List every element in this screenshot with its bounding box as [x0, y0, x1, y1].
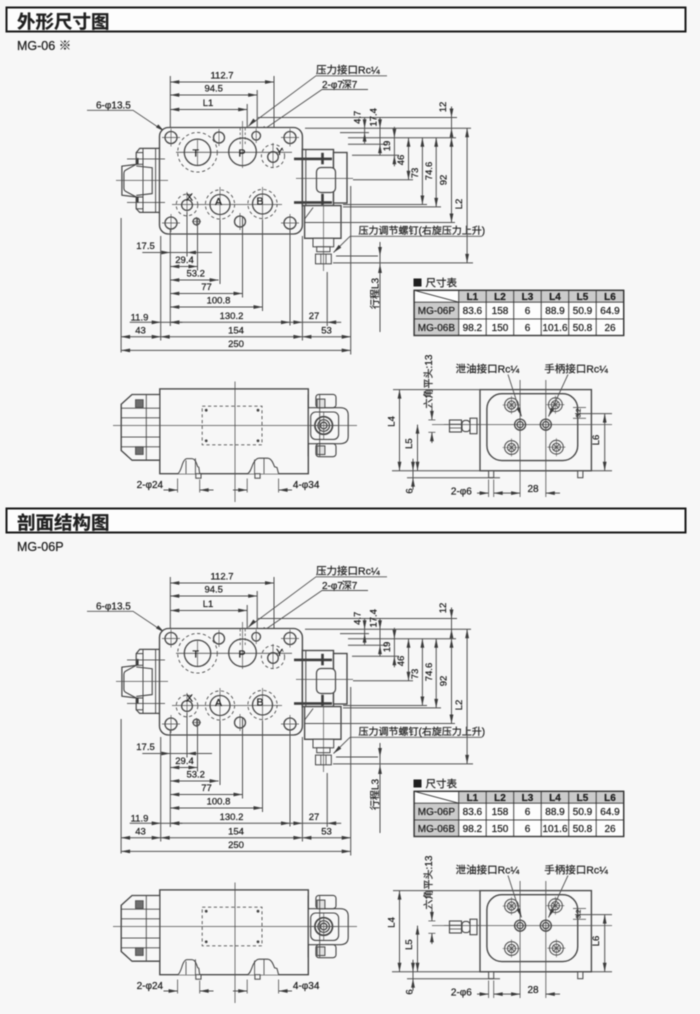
svg-text:X: X: [186, 693, 193, 705]
svg-text:P: P: [239, 148, 246, 160]
svg-text:17.4: 17.4: [368, 609, 379, 628]
svg-text:L2: L2: [494, 292, 506, 303]
svg-text:2-φ6: 2-φ6: [451, 987, 472, 998]
svg-text:4.7: 4.7: [353, 612, 364, 625]
svg-text:4.7: 4.7: [353, 111, 364, 124]
svg-text:MG-06: MG-06: [17, 39, 55, 53]
svg-text:Y: Y: [276, 647, 283, 659]
svg-text:77: 77: [201, 282, 212, 293]
svg-text:X: X: [186, 192, 193, 204]
svg-text:29.4: 29.4: [175, 255, 194, 266]
svg-text:P: P: [239, 649, 246, 661]
svg-text:3.2: 3.2: [576, 909, 583, 918]
svg-text:64.9: 64.9: [600, 306, 620, 317]
svg-text:98.2: 98.2: [463, 323, 483, 334]
svg-text:73: 73: [410, 669, 421, 680]
svg-text:27: 27: [309, 311, 320, 322]
svg-text:17.5: 17.5: [136, 742, 155, 753]
svg-text:MG-06P: MG-06P: [418, 306, 456, 317]
svg-text:101.6: 101.6: [542, 824, 567, 835]
svg-text:Y: Y: [276, 146, 283, 158]
svg-text:L3: L3: [370, 779, 381, 791]
svg-text:83.6: 83.6: [463, 306, 483, 317]
svg-text:50.9: 50.9: [573, 807, 593, 818]
svg-text:46: 46: [396, 155, 407, 166]
svg-text:29.4: 29.4: [175, 756, 194, 767]
svg-text:53.2: 53.2: [186, 770, 205, 781]
svg-text:92: 92: [439, 175, 450, 186]
svg-text:11.9: 11.9: [131, 312, 149, 323]
svg-text:2-φ6: 2-φ6: [451, 486, 472, 497]
svg-text:L3: L3: [522, 793, 534, 804]
svg-text:6: 6: [525, 824, 531, 835]
svg-text:Rc¼: Rc¼: [586, 865, 608, 877]
svg-text:11.9: 11.9: [131, 813, 149, 824]
svg-text:50.9: 50.9: [573, 306, 593, 317]
svg-text:83.6: 83.6: [463, 807, 483, 818]
svg-text:L1: L1: [467, 793, 479, 804]
svg-text:112.7: 112.7: [210, 571, 233, 582]
svg-text:6-φ13.5: 6-φ13.5: [96, 101, 131, 112]
svg-text:158: 158: [492, 807, 509, 818]
svg-text:L2: L2: [494, 793, 506, 804]
svg-text:154: 154: [228, 826, 244, 837]
svg-text:150: 150: [492, 824, 509, 835]
svg-text:26: 26: [604, 824, 616, 835]
svg-text:28: 28: [527, 484, 539, 495]
svg-text:6: 6: [525, 306, 531, 317]
svg-text:150: 150: [492, 323, 509, 334]
svg-text:L4: L4: [549, 793, 561, 804]
svg-text:88.9: 88.9: [545, 807, 565, 818]
svg-text:130.2: 130.2: [220, 812, 244, 823]
svg-text:19: 19: [382, 642, 393, 653]
svg-text:MG-06B: MG-06B: [418, 824, 456, 835]
svg-text:94.5: 94.5: [204, 83, 223, 94]
svg-text:74.6: 74.6: [424, 162, 435, 181]
svg-text:L5: L5: [404, 438, 415, 449]
svg-text:154: 154: [228, 325, 244, 336]
svg-text:26: 26: [604, 323, 616, 334]
svg-text:(: (: [419, 727, 423, 738]
svg-text:6: 6: [405, 989, 416, 994]
svg-text:2-φ24: 2-φ24: [137, 480, 164, 491]
svg-text:2-φ24: 2-φ24: [137, 981, 164, 992]
svg-text:L3: L3: [522, 292, 534, 303]
svg-text:43: 43: [135, 826, 146, 837]
svg-text:98.2: 98.2: [463, 824, 483, 835]
svg-text:MG-06B: MG-06B: [418, 323, 456, 334]
svg-text:50.8: 50.8: [573, 323, 593, 334]
svg-text:L6: L6: [604, 292, 616, 303]
svg-text:A: A: [215, 697, 222, 709]
svg-text:L1: L1: [203, 599, 214, 610]
svg-text:L4: L4: [387, 917, 398, 928]
svg-text:6: 6: [525, 807, 531, 818]
svg-text:92: 92: [439, 676, 450, 687]
svg-text:Rc¼: Rc¼: [358, 566, 380, 578]
svg-text:MG-06P: MG-06P: [418, 807, 456, 818]
svg-text:101.6: 101.6: [542, 323, 567, 334]
svg-text:250: 250: [228, 339, 244, 350]
svg-text:12: 12: [438, 102, 449, 113]
svg-text:53: 53: [321, 325, 332, 336]
svg-text:L2: L2: [454, 700, 465, 711]
svg-text:L4: L4: [387, 416, 398, 427]
svg-text:L5: L5: [577, 793, 589, 804]
svg-text:Rc¼: Rc¼: [498, 364, 520, 376]
svg-text:19: 19: [382, 141, 393, 152]
svg-text:L6: L6: [591, 435, 602, 446]
svg-text:Rc¼: Rc¼: [358, 65, 380, 77]
svg-text:100.8: 100.8: [207, 296, 231, 307]
svg-text::13: :13: [424, 354, 435, 368]
svg-text:43: 43: [135, 325, 146, 336]
svg-text:4-φ34: 4-φ34: [293, 981, 320, 992]
svg-text:50.8: 50.8: [573, 824, 593, 835]
svg-text:94.5: 94.5: [204, 584, 223, 595]
svg-text:L5: L5: [404, 939, 415, 950]
svg-text:4-φ34: 4-φ34: [293, 480, 320, 491]
svg-text:12: 12: [438, 603, 449, 614]
svg-text:T: T: [193, 649, 200, 661]
svg-text:27: 27: [309, 812, 320, 823]
svg-text:L6: L6: [591, 936, 602, 947]
svg-text:Rc¼: Rc¼: [498, 865, 520, 877]
svg-text:L6: L6: [604, 793, 616, 804]
svg-text:A: A: [215, 196, 222, 208]
svg-text:17.5: 17.5: [136, 241, 155, 252]
svg-text:6: 6: [525, 323, 531, 334]
svg-text::13: :13: [424, 855, 435, 869]
svg-text:53: 53: [321, 826, 332, 837]
svg-text:77: 77: [201, 783, 212, 794]
svg-text:28: 28: [527, 985, 539, 996]
svg-text:(: (: [419, 226, 423, 237]
svg-text:MG-06P: MG-06P: [17, 540, 64, 554]
svg-text:6: 6: [405, 488, 416, 493]
svg-text:B: B: [257, 697, 264, 709]
svg-text:B: B: [257, 196, 264, 208]
svg-text:53.2: 53.2: [186, 269, 205, 280]
svg-text:L3: L3: [370, 278, 381, 290]
svg-text:T: T: [193, 148, 200, 160]
svg-text:130.2: 130.2: [220, 311, 244, 322]
svg-text:17.4: 17.4: [368, 108, 379, 127]
svg-text:3.2: 3.2: [576, 408, 583, 417]
svg-text:L5: L5: [577, 292, 589, 303]
svg-text:): ): [482, 226, 485, 237]
svg-text:L4: L4: [549, 292, 561, 303]
svg-text:): ): [482, 727, 485, 738]
svg-text:158: 158: [492, 306, 509, 317]
svg-text:73: 73: [410, 168, 421, 179]
svg-text:46: 46: [396, 656, 407, 667]
svg-text:250: 250: [228, 840, 244, 851]
svg-text:74.6: 74.6: [424, 663, 435, 682]
svg-text:L1: L1: [203, 98, 214, 109]
svg-text:6-φ13.5: 6-φ13.5: [96, 602, 131, 613]
svg-text:112.7: 112.7: [210, 70, 233, 81]
svg-text:64.9: 64.9: [600, 807, 620, 818]
svg-text:L2: L2: [454, 199, 465, 210]
svg-text:L1: L1: [467, 292, 479, 303]
svg-text:88.9: 88.9: [545, 306, 565, 317]
svg-text:Rc¼: Rc¼: [586, 364, 608, 376]
svg-text:100.8: 100.8: [207, 797, 231, 808]
